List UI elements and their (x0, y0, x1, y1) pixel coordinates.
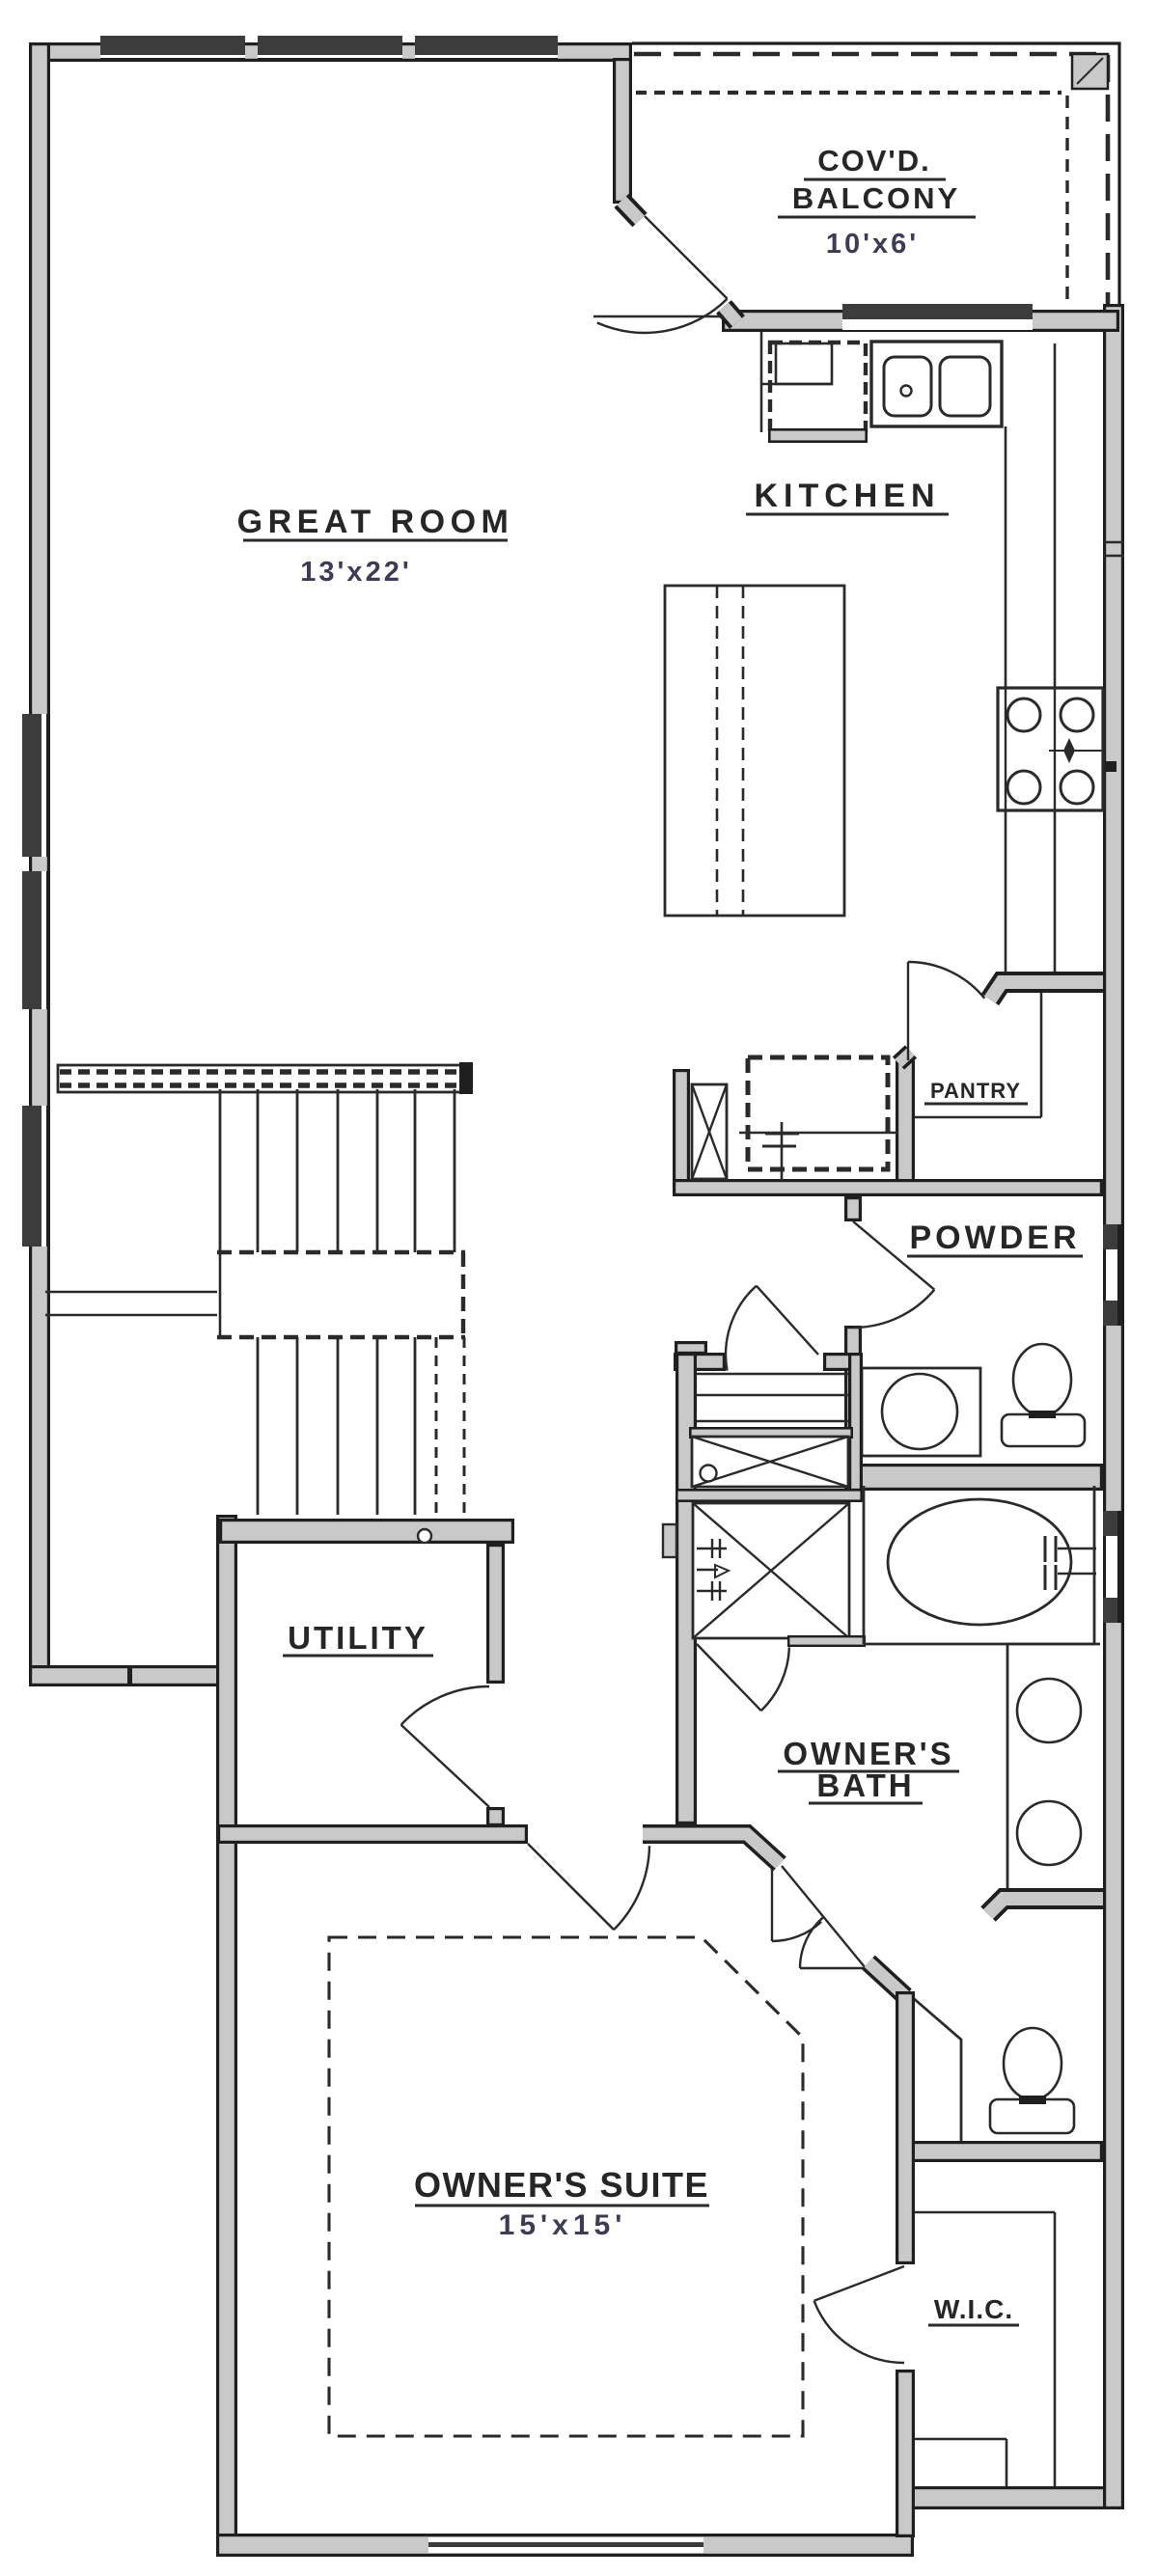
svg-text:BALCONY: BALCONY (792, 181, 960, 215)
svg-text:13'x22': 13'x22' (300, 557, 411, 588)
svg-text:W.I.C.: W.I.C. (934, 2294, 1013, 2324)
svg-text:UTILITY: UTILITY (288, 1620, 428, 1656)
svg-text:PANTRY: PANTRY (930, 1079, 1021, 1103)
svg-text:KITCHEN: KITCHEN (754, 478, 940, 514)
svg-text:GREAT ROOM: GREAT ROOM (237, 504, 514, 540)
svg-text:15'x15': 15'x15' (499, 2209, 627, 2241)
svg-text:COV'D.: COV'D. (817, 144, 931, 178)
svg-text:10'x6': 10'x6' (826, 229, 919, 260)
svg-text:BATH: BATH (816, 1768, 914, 1803)
svg-text:POWDER: POWDER (910, 1219, 1081, 1256)
svg-text:OWNER'S SUITE: OWNER'S SUITE (414, 2165, 709, 2205)
svg-text:OWNER'S: OWNER'S (783, 1736, 953, 1771)
